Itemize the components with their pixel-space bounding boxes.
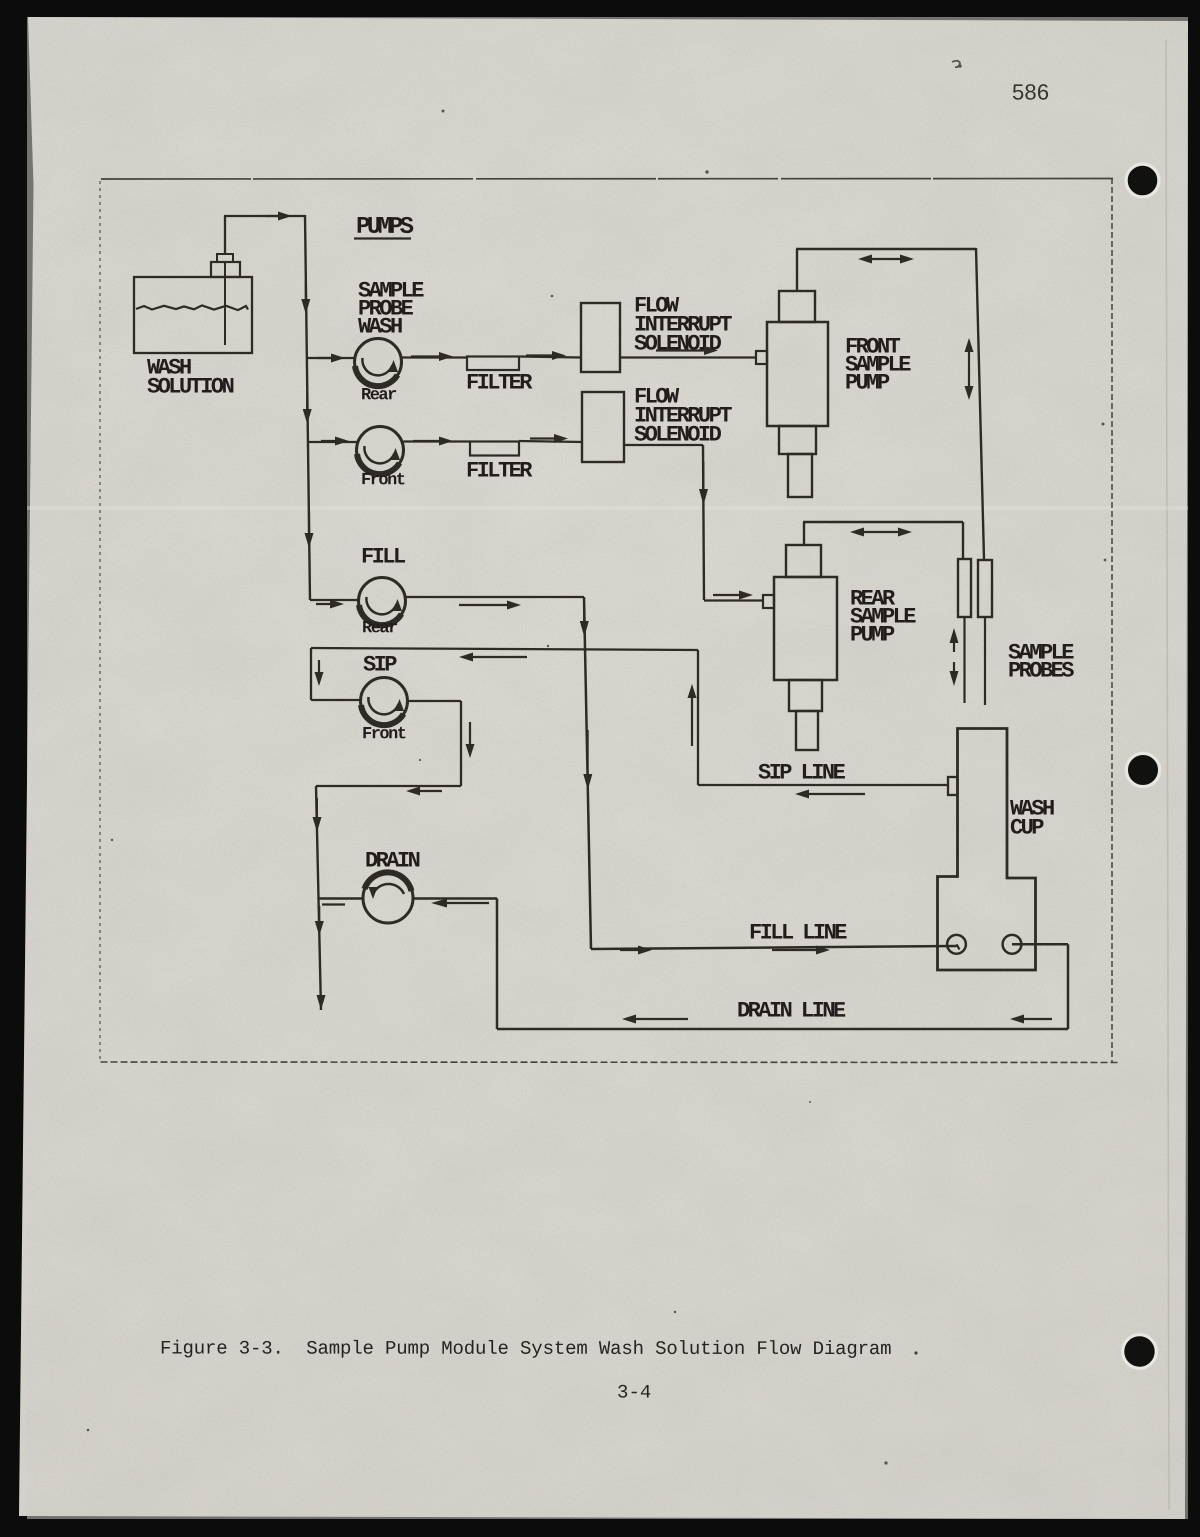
svg-text:Rear: Rear <box>361 386 396 405</box>
svg-text:FILL: FILL <box>361 545 406 570</box>
svg-text:Figure 3-3. Sample Pump Modul: Figure 3-3. Sample Pump Module System Wa… <box>160 1338 891 1361</box>
svg-text:PUMP: PUMP <box>850 623 895 648</box>
svg-text:Front: Front <box>362 725 406 744</box>
svg-text:SIP LINE: SIP LINE <box>758 761 846 786</box>
svg-text:PUMP: PUMP <box>845 371 890 396</box>
svg-text:SIP: SIP <box>363 653 397 678</box>
svg-text:DRAIN LINE: DRAIN LINE <box>737 999 846 1024</box>
svg-text:PUMPS: PUMPS <box>356 214 414 241</box>
svg-text:Rear: Rear <box>362 619 397 638</box>
svg-text:PROBES: PROBES <box>1008 659 1074 684</box>
svg-text:SOLENOID: SOLENOID <box>634 423 722 448</box>
svg-text:3-4: 3-4 <box>617 1382 651 1404</box>
svg-text:WASH: WASH <box>358 315 402 340</box>
svg-text:586: 586 <box>1012 80 1049 105</box>
svg-text:FILTER: FILTER <box>466 371 533 396</box>
svg-text:CUP: CUP <box>1010 816 1044 841</box>
svg-text:Front: Front <box>361 471 405 490</box>
svg-text:SOLUTION: SOLUTION <box>147 375 234 400</box>
svg-text:FILL LINE: FILL LINE <box>749 921 847 946</box>
svg-text:FILTER: FILTER <box>466 459 533 484</box>
